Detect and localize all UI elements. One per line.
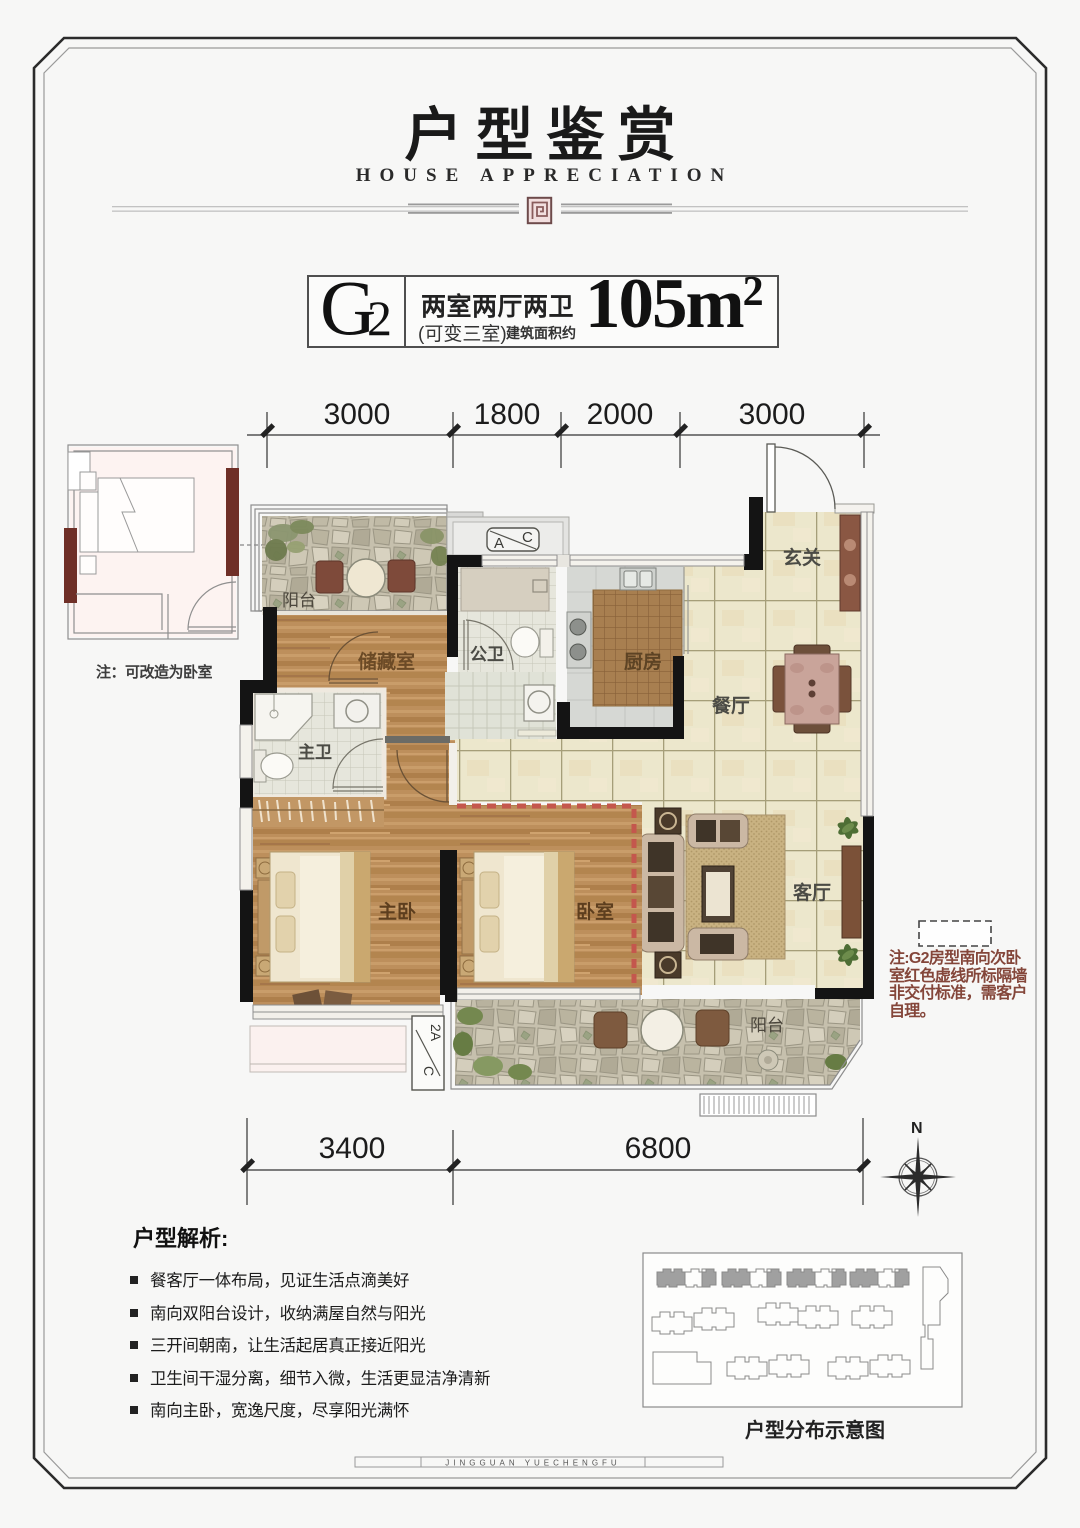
svg-text:3000: 3000	[324, 398, 391, 431]
svg-text:主卫: 主卫	[298, 742, 332, 762]
svg-text:N: N	[911, 1120, 923, 1137]
svg-text:3000: 3000	[739, 398, 806, 431]
svg-text:3400: 3400	[319, 1132, 386, 1165]
svg-text:C: C	[522, 529, 533, 546]
svg-text:阳台: 阳台	[750, 1016, 784, 1035]
svg-text:玄关: 玄关	[783, 546, 821, 569]
svg-text:2A: 2A	[428, 1024, 444, 1042]
svg-text:C: C	[421, 1066, 437, 1076]
svg-text:主卧: 主卧	[378, 901, 416, 923]
svg-text:卧室: 卧室	[576, 900, 614, 923]
svg-text:1800: 1800	[474, 398, 541, 431]
svg-text:注：可改造为卧室: 注：可改造为卧室	[96, 663, 213, 681]
svg-text:厨房: 厨房	[624, 650, 662, 673]
svg-text:6800: 6800	[625, 1132, 692, 1165]
svg-text:2000: 2000	[587, 398, 654, 431]
svg-text:阳台: 阳台	[282, 591, 316, 610]
svg-text:餐厅: 餐厅	[712, 694, 750, 717]
svg-text:储藏室: 储藏室	[358, 650, 415, 673]
svg-text:A: A	[494, 535, 504, 552]
svg-text:JINGGUAN YUECHENGFU: JINGGUAN YUECHENGFU	[445, 1459, 620, 1468]
svg-text:公卫: 公卫	[470, 645, 504, 664]
svg-text:客厅: 客厅	[793, 881, 831, 904]
